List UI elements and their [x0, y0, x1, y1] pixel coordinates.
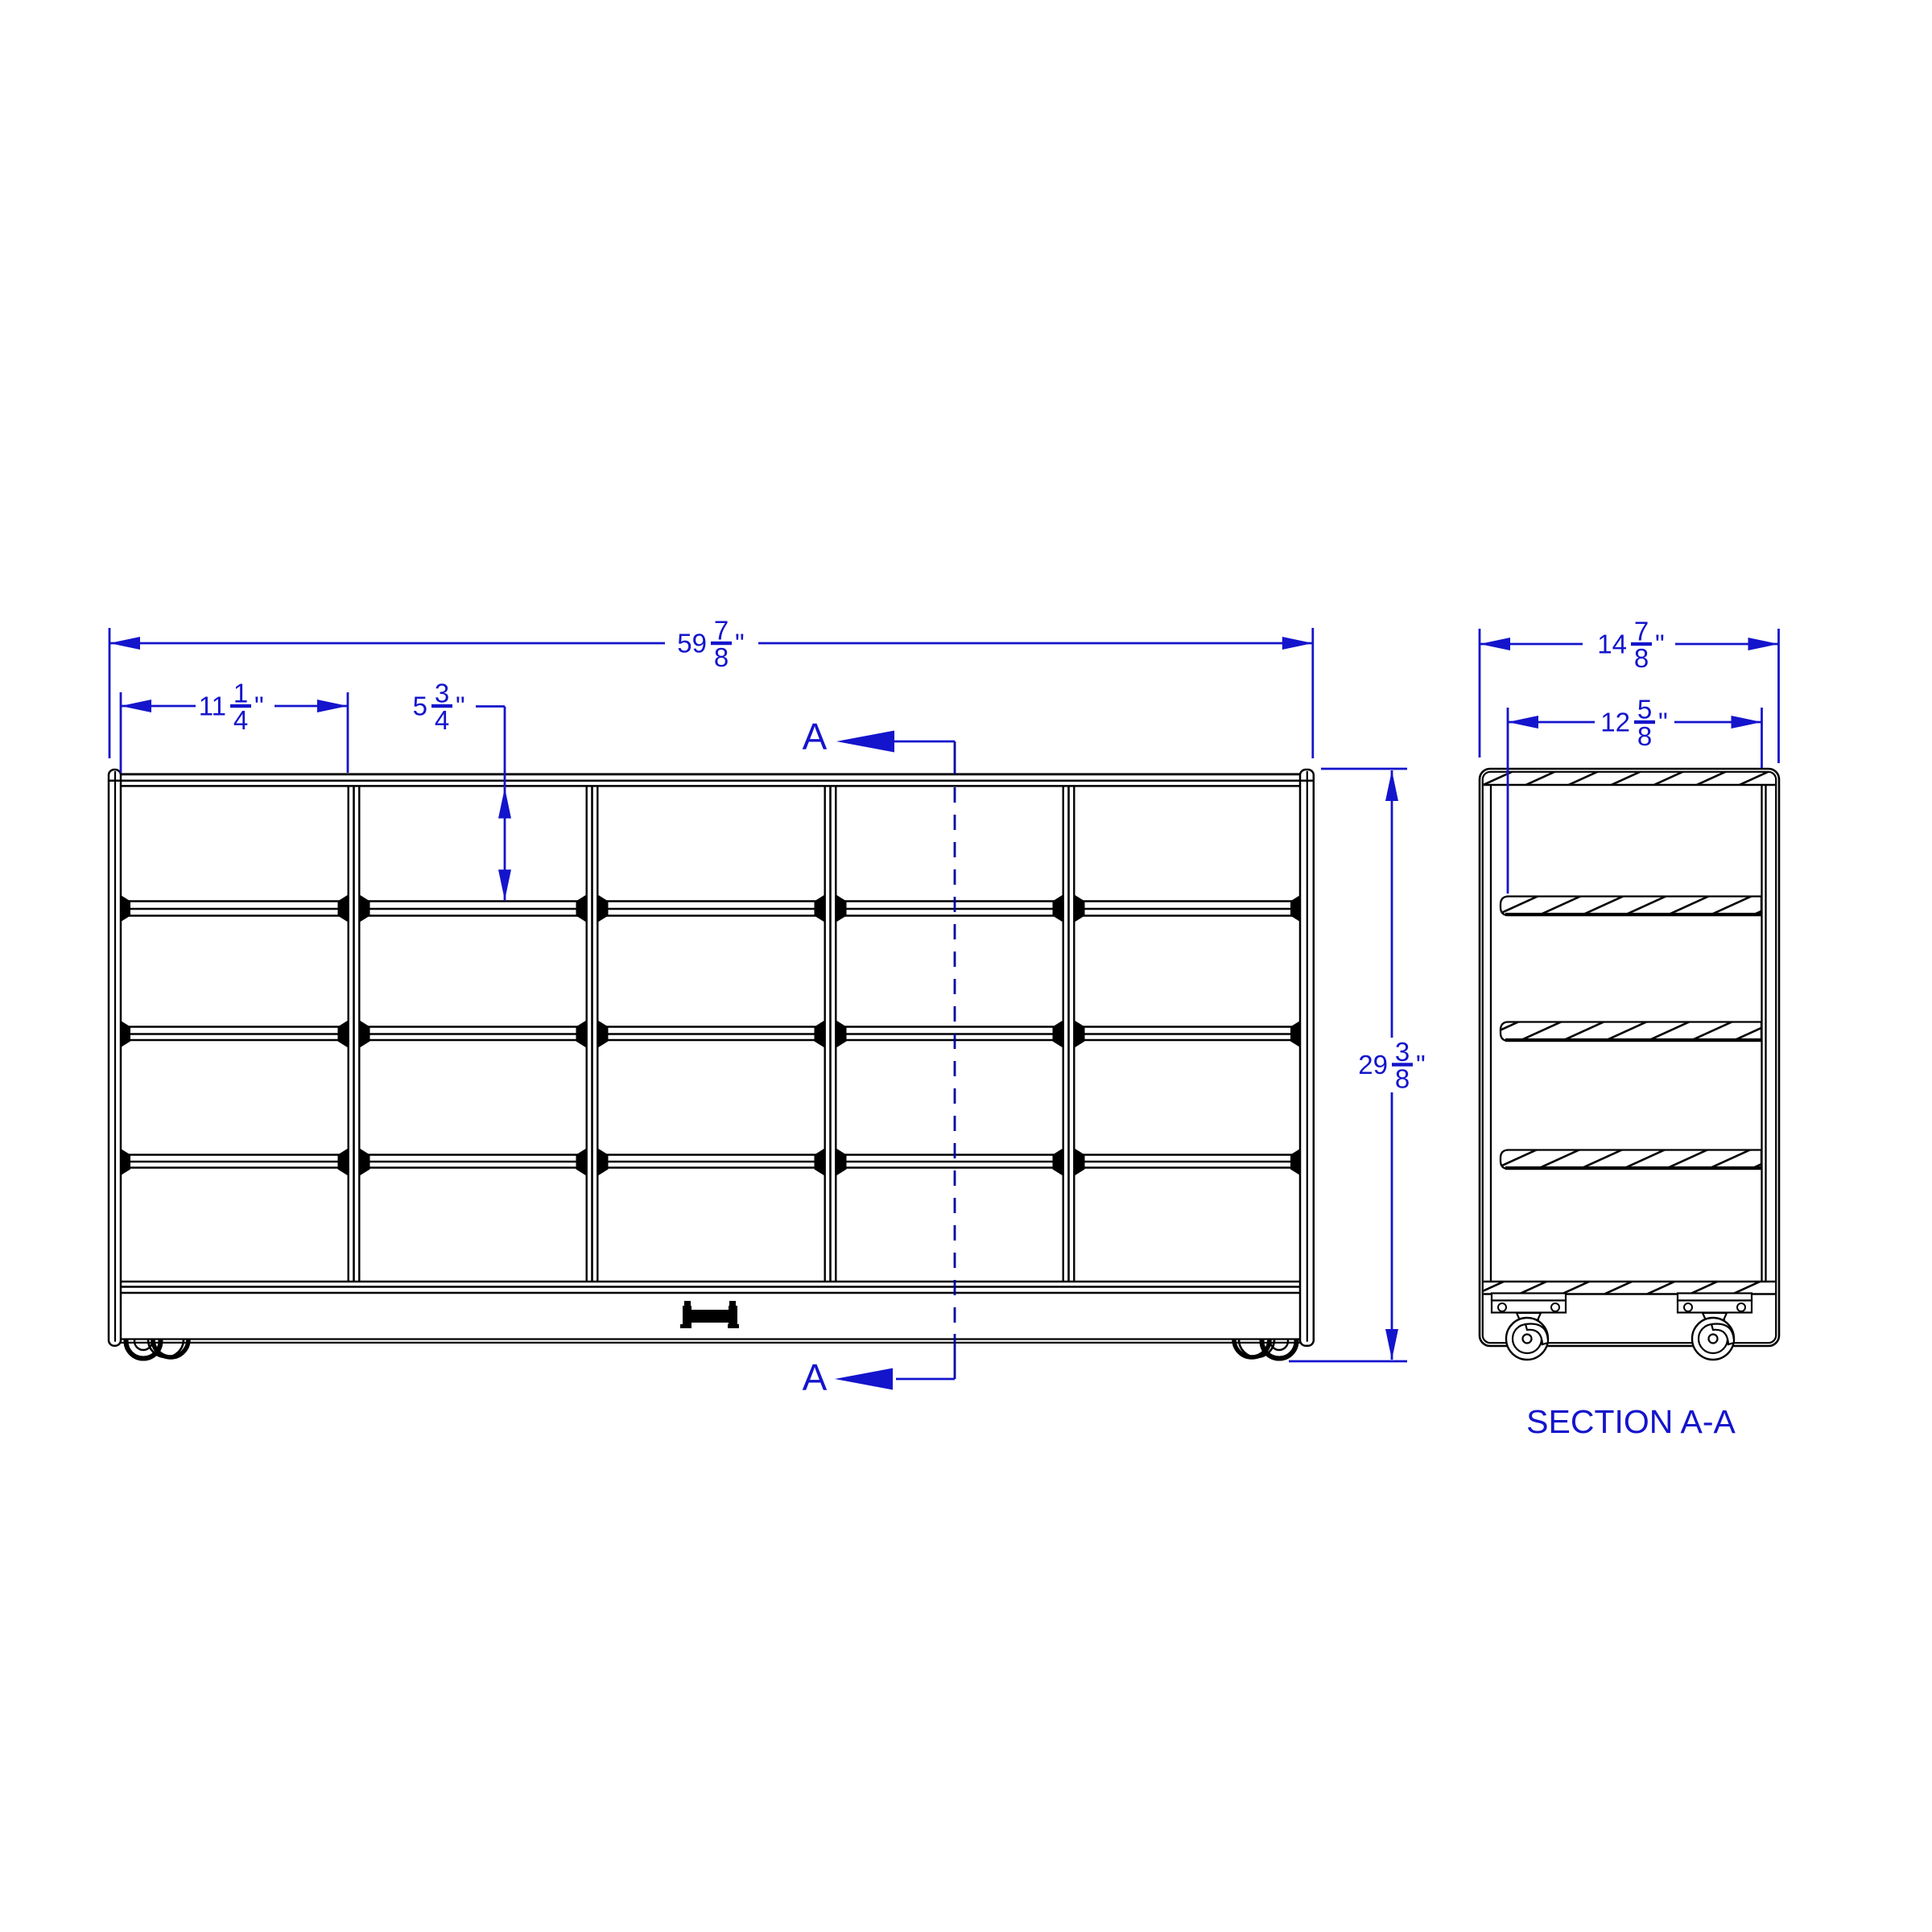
- svg-text:A: A: [803, 1356, 828, 1398]
- svg-text:4: 4: [233, 705, 248, 735]
- svg-text:3: 3: [435, 679, 449, 708]
- svg-text:7: 7: [714, 616, 729, 646]
- svg-text:A: A: [803, 716, 828, 758]
- svg-text:59: 59: [677, 629, 707, 658]
- svg-text:1: 1: [233, 679, 248, 708]
- svg-text:": ": [456, 691, 465, 721]
- svg-text:5: 5: [1637, 695, 1652, 724]
- svg-text:7: 7: [1634, 617, 1649, 646]
- svg-text:29: 29: [1358, 1050, 1388, 1080]
- svg-text:": ": [1655, 630, 1665, 659]
- svg-text:": ": [254, 691, 264, 721]
- svg-text:3: 3: [1395, 1037, 1410, 1067]
- svg-text:": ": [1658, 708, 1668, 737]
- svg-text:": ": [1416, 1050, 1426, 1080]
- svg-text:14: 14: [1597, 630, 1627, 659]
- svg-text:8: 8: [1634, 643, 1649, 673]
- svg-text:4: 4: [435, 705, 449, 735]
- svg-text:": ": [735, 629, 745, 658]
- svg-text:5: 5: [413, 691, 427, 721]
- svg-text:11: 11: [199, 691, 226, 721]
- svg-text:12: 12: [1600, 708, 1630, 737]
- svg-text:8: 8: [714, 642, 729, 672]
- svg-text:8: 8: [1395, 1064, 1410, 1094]
- svg-text:SECTION A-A: SECTION A-A: [1526, 1403, 1736, 1440]
- svg-text:8: 8: [1637, 721, 1652, 751]
